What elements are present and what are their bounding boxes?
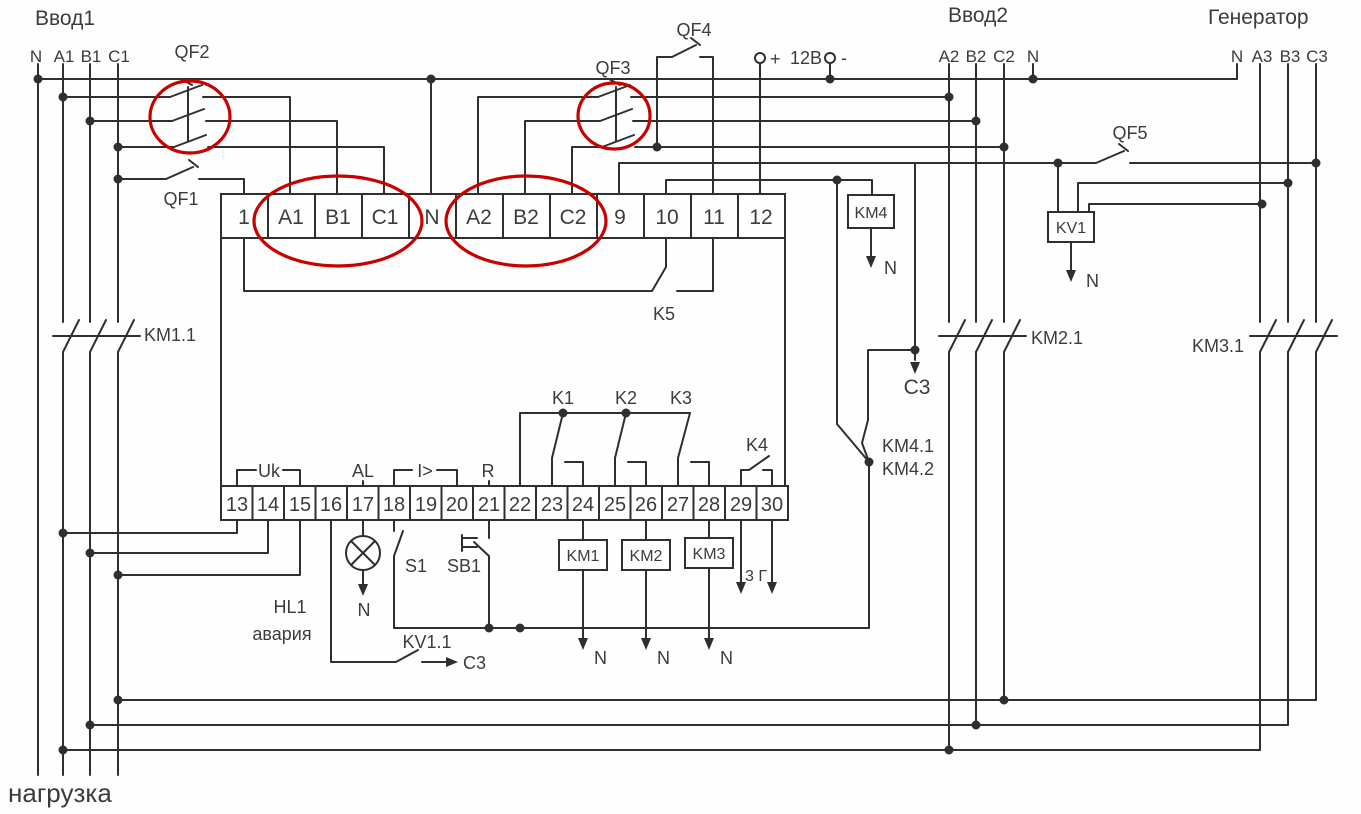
km3-coil: KM3 N bbox=[685, 520, 733, 668]
label-12v: 12В bbox=[790, 48, 822, 68]
label-alarm: авария bbox=[252, 624, 311, 644]
label-a3: A3 bbox=[1252, 47, 1273, 66]
label-overcurrent: I> bbox=[417, 461, 433, 481]
highlight-qf2 bbox=[150, 81, 230, 153]
terminal-label-12: 12 bbox=[749, 206, 772, 229]
contactor-km2-1 bbox=[939, 320, 1026, 352]
terminal-label-16: 16 bbox=[320, 494, 342, 516]
breaker-qf4-wire bbox=[657, 38, 713, 194]
arrow-km1-n bbox=[578, 638, 588, 650]
qf3-blades bbox=[598, 79, 634, 147]
label-c3: C3 bbox=[1306, 47, 1328, 66]
contactor-km1-1 bbox=[53, 320, 140, 352]
terminal-label-28: 28 bbox=[698, 494, 720, 516]
label-k1: K1 bbox=[552, 388, 574, 408]
label-km3-n: N bbox=[720, 648, 733, 668]
load-buses bbox=[63, 700, 1316, 750]
input1-line-labels: N A1 B1 C1 bbox=[30, 47, 130, 66]
label-qf2: QF2 bbox=[174, 42, 209, 62]
label-a1: A1 bbox=[54, 47, 75, 66]
km2-coil: KM2 N bbox=[622, 520, 670, 668]
terminal-label-18: 18 bbox=[383, 494, 405, 516]
title-input2: Ввод2 bbox=[948, 4, 1008, 27]
label-k2: K2 bbox=[615, 388, 637, 408]
arrow-km4-n bbox=[866, 256, 876, 268]
arrow-km3-n bbox=[704, 638, 714, 650]
controller-body bbox=[221, 238, 785, 486]
terminal-label-10: 10 bbox=[655, 206, 678, 229]
title-input1: Ввод1 bbox=[35, 7, 95, 30]
terminal-label-11: 11 bbox=[703, 206, 725, 229]
supply-minus-terminal bbox=[825, 53, 835, 63]
terminal-label-15: 15 bbox=[289, 494, 311, 516]
km21-blades bbox=[939, 320, 1026, 352]
terminal-label-a2: A2 bbox=[466, 206, 492, 229]
arrow-hl1-n bbox=[358, 584, 368, 596]
bottom-terminal-row: 13 14 15 16 17 18 19 20 21 22 23 24 25 2… bbox=[221, 486, 788, 520]
label-qf4: QF4 bbox=[676, 20, 711, 40]
generator-phase-columns bbox=[1260, 64, 1316, 750]
label-sb1: SB1 bbox=[447, 556, 481, 576]
generator-line-labels: N A3 B3 C3 bbox=[1231, 47, 1328, 66]
arrow-kv11-c3 bbox=[446, 657, 458, 667]
label-b3: B3 bbox=[1280, 47, 1301, 66]
terminal-label-29: 29 bbox=[730, 494, 752, 516]
label-al: AL bbox=[352, 461, 374, 481]
input2-line-labels: A2 B2 C2 N bbox=[939, 47, 1040, 66]
label-qf5: QF5 bbox=[1112, 123, 1147, 143]
terminal-label-27: 27 bbox=[667, 494, 689, 516]
terminal-label-1: 1 bbox=[238, 206, 250, 229]
s1-switch-wire bbox=[394, 520, 403, 628]
label-km1-1: KM1.1 bbox=[144, 325, 196, 345]
wiring-diagram-page: Ввод1 Ввод2 Генератор нагрузка N A1 B1 C… bbox=[0, 0, 1361, 814]
km11-blades bbox=[53, 320, 140, 352]
terminal-label-19: 19 bbox=[415, 494, 437, 516]
label-c3-kv11: C3 bbox=[463, 653, 486, 673]
label-c3-km42: C3 bbox=[904, 376, 931, 399]
label-km3: KM3 bbox=[693, 546, 726, 563]
label-b1: B1 bbox=[81, 47, 102, 66]
label-kv1-1: KV1.1 bbox=[402, 632, 451, 652]
top-terminal-row: 1 A1 B1 C1 N A2 B2 C2 9 10 11 12 bbox=[221, 194, 785, 238]
arrow-km2-n bbox=[641, 638, 651, 650]
label-kv1: KV1 bbox=[1056, 220, 1086, 237]
breaker-qf2 bbox=[170, 79, 206, 147]
label-n1: N bbox=[30, 47, 42, 66]
breaker-qf5-wire bbox=[619, 144, 1316, 194]
title-generator: Генератор bbox=[1208, 6, 1309, 29]
label-km4-n: N bbox=[884, 258, 897, 278]
label-qf1: QF1 bbox=[163, 189, 198, 209]
arrow-c3-ref bbox=[910, 362, 920, 374]
label-k5: K5 bbox=[653, 304, 675, 324]
terminal-label-25: 25 bbox=[604, 494, 626, 516]
uk-sense-wires bbox=[63, 520, 300, 575]
label-minus: - bbox=[841, 48, 847, 68]
hl1-lamp: N bbox=[346, 520, 380, 620]
ats-schematic: Ввод1 Ввод2 Генератор нагрузка N A1 B1 C… bbox=[0, 0, 1361, 814]
label-r: R bbox=[482, 461, 495, 481]
label-kv1-n: N bbox=[1086, 271, 1099, 291]
terminal-label-23: 23 bbox=[541, 494, 563, 516]
label-hl1-n: N bbox=[358, 600, 371, 620]
label-km2: KM2 bbox=[630, 548, 663, 565]
terminal-label-n: N bbox=[424, 206, 439, 229]
terminal-label-17: 17 bbox=[352, 494, 374, 516]
label-km2-n: N bbox=[657, 648, 670, 668]
label-k3: K3 bbox=[670, 388, 692, 408]
terminal-label-a1: A1 bbox=[278, 206, 304, 229]
km31-blades bbox=[1250, 320, 1337, 352]
label-km3-1: KM3.1 bbox=[1192, 336, 1244, 356]
input2-phase-columns bbox=[949, 64, 1004, 750]
qf2-blades bbox=[170, 79, 206, 147]
label-km1: KM1 bbox=[567, 548, 600, 565]
terminal-label-b2: B2 bbox=[513, 206, 539, 229]
terminal-label-c2: C2 bbox=[560, 206, 587, 229]
label-km4: KM4 bbox=[855, 205, 888, 222]
terminal-label-30: 30 bbox=[761, 494, 783, 516]
title-load: нагрузка bbox=[8, 778, 112, 808]
label-c1: C1 bbox=[108, 47, 130, 66]
terminal-label-13: 13 bbox=[226, 494, 248, 516]
label-k4: K4 bbox=[746, 435, 768, 455]
terminal-label-24: 24 bbox=[572, 494, 594, 516]
label-km1-n: N bbox=[594, 648, 607, 668]
terminal-label-20: 20 bbox=[446, 494, 468, 516]
label-hl1: HL1 bbox=[273, 597, 306, 617]
terminal-label-b1: B1 bbox=[325, 206, 351, 229]
terminal-label-22: 22 bbox=[509, 494, 531, 516]
arrow-gen-start-2 bbox=[767, 582, 777, 594]
breaker-qf3 bbox=[598, 79, 634, 147]
terminal-label-21: 21 bbox=[478, 494, 500, 516]
input1-phase-columns bbox=[63, 64, 118, 775]
label-km4-1: KM4.1 bbox=[882, 436, 934, 456]
contactor-km3-1 bbox=[1250, 320, 1337, 352]
label-gen-start: 3 Г bbox=[745, 568, 767, 585]
km1-coil: KM1 N bbox=[559, 520, 607, 668]
label-qf3: QF3 bbox=[595, 58, 630, 78]
terminal-label-c1: C1 bbox=[372, 206, 399, 229]
terminal-label-9: 9 bbox=[614, 206, 626, 229]
label-km2-1: KM2.1 bbox=[1031, 328, 1083, 348]
arrow-kv1-n bbox=[1066, 270, 1076, 282]
label-s1: S1 bbox=[405, 556, 427, 576]
supply-plus-terminal bbox=[755, 53, 765, 63]
label-uk: Uk bbox=[258, 461, 281, 481]
terminal-label-14: 14 bbox=[257, 494, 279, 516]
terminal-label-26: 26 bbox=[635, 494, 657, 516]
label-plus: + bbox=[770, 49, 781, 69]
label-km4-2: KM4.2 bbox=[882, 459, 934, 479]
